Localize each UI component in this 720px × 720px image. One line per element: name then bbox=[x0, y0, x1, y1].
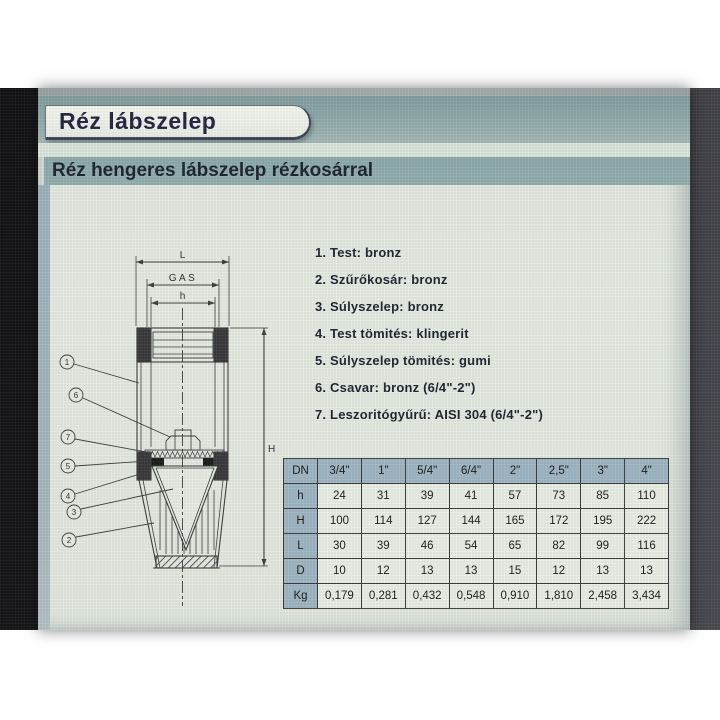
table-cell: 99 bbox=[581, 534, 625, 559]
table-cell: 172 bbox=[537, 509, 581, 534]
table-cell: 100 bbox=[318, 509, 362, 534]
materials-list: 1. Test: bronz 2. Szűrőkosár: bronz 3. S… bbox=[315, 245, 665, 434]
table-cell: 46 bbox=[405, 534, 449, 559]
table-cell: 222 bbox=[625, 509, 669, 534]
dim-label-L: L bbox=[180, 250, 186, 261]
col-header: 1" bbox=[361, 459, 405, 484]
table-cell: 0,281 bbox=[361, 584, 405, 609]
table-cell: 144 bbox=[449, 509, 493, 534]
col-header: 3" bbox=[581, 459, 625, 484]
table-cell: 127 bbox=[405, 509, 449, 534]
table-cell: 13 bbox=[405, 559, 449, 584]
title-band: Réz lábszelep bbox=[38, 96, 690, 143]
table-cell: 12 bbox=[537, 559, 581, 584]
table-row: L 30 39 46 54 65 82 99 116 bbox=[284, 534, 669, 559]
table-cell: 65 bbox=[493, 534, 537, 559]
table-cell: 12 bbox=[361, 559, 405, 584]
table-cell: 31 bbox=[361, 484, 405, 509]
col-header: 3/4" bbox=[318, 459, 362, 484]
col-header: 2" bbox=[493, 459, 537, 484]
table-header-row: DN 3/4" 1" 5/4" 6/4" 2" 2,5" 3" 4" bbox=[284, 459, 669, 484]
page-title: Réz lábszelep bbox=[45, 105, 311, 140]
table-cell: 165 bbox=[493, 509, 537, 534]
table-cell: 13 bbox=[581, 559, 625, 584]
table-cell: 0,179 bbox=[318, 584, 362, 609]
callout-1: 1 bbox=[65, 358, 70, 367]
catalog-page: Réz lábszelep Réz hengeres lábszelep réz… bbox=[38, 88, 690, 630]
table-cell: 15 bbox=[493, 559, 537, 584]
table-cell: 1,810 bbox=[537, 584, 581, 609]
page-top-edge bbox=[38, 88, 690, 96]
table-cell: 41 bbox=[449, 484, 493, 509]
table-cell: 73 bbox=[537, 484, 581, 509]
valve-technical-drawing: L GAS bbox=[50, 243, 290, 615]
material-item: 7. Leszoritógyűrű: AISI 304 (6/4"-2") bbox=[315, 407, 665, 420]
table-row: h 24 31 39 41 57 73 85 110 bbox=[284, 484, 669, 509]
photo-background: Réz lábszelep Réz hengeres lábszelep réz… bbox=[0, 88, 720, 630]
basket-bottom-cap bbox=[153, 556, 220, 568]
col-header: 4" bbox=[625, 459, 669, 484]
table-cell: 57 bbox=[493, 484, 537, 509]
table-cell: 195 bbox=[581, 509, 625, 534]
table-row: H 100 114 127 144 165 172 195 222 bbox=[284, 509, 669, 534]
dimension-H: H bbox=[219, 328, 275, 566]
col-header: 6/4" bbox=[449, 459, 493, 484]
table-cell: 3,434 bbox=[625, 584, 669, 609]
material-item: 1. Test: bronz bbox=[315, 245, 665, 258]
table-cell: 39 bbox=[361, 534, 405, 559]
table-cell: 0,548 bbox=[449, 584, 493, 609]
dim-label-GAS: GAS bbox=[169, 273, 198, 284]
page-margin-strip bbox=[38, 185, 50, 630]
row-label: Kg bbox=[284, 584, 318, 609]
table-cell: 114 bbox=[361, 509, 405, 534]
dim-label-h: h bbox=[180, 291, 186, 302]
dimension-h: h bbox=[151, 291, 215, 327]
row-label: h bbox=[284, 484, 318, 509]
material-item: 2. Szűrőkosár: bronz bbox=[315, 272, 665, 285]
callout-7: 7 bbox=[66, 433, 71, 442]
col-header: DN bbox=[284, 459, 318, 484]
table-cell: 13 bbox=[449, 559, 493, 584]
material-item: 5. Súlyszelep tömités: gumi bbox=[315, 353, 665, 366]
callout-4: 4 bbox=[66, 492, 71, 501]
table-cell: 30 bbox=[318, 534, 362, 559]
dim-label-H: H bbox=[268, 444, 275, 455]
material-item: 6. Csavar: bronz (6/4"-2") bbox=[315, 380, 665, 393]
spec-table: DN 3/4" 1" 5/4" 6/4" 2" 2,5" 3" 4" h 24 … bbox=[283, 458, 669, 609]
table-cell: 13 bbox=[625, 559, 669, 584]
content-area: L GAS bbox=[38, 185, 690, 630]
row-label: L bbox=[284, 534, 318, 559]
callout-2: 2 bbox=[67, 536, 72, 545]
table-cell: 85 bbox=[581, 484, 625, 509]
callouts: 1 6 7 5 4 3 2 bbox=[60, 355, 173, 547]
row-label: D bbox=[284, 559, 318, 584]
table-cell: 82 bbox=[537, 534, 581, 559]
valve-bolt bbox=[166, 430, 200, 450]
flange-left bbox=[137, 452, 151, 480]
table-cell: 24 bbox=[318, 484, 362, 509]
table-cell: 39 bbox=[405, 484, 449, 509]
callout-6: 6 bbox=[74, 391, 79, 400]
table-cell: 110 bbox=[625, 484, 669, 509]
table-cell: 0,910 bbox=[493, 584, 537, 609]
col-header: 5/4" bbox=[405, 459, 449, 484]
table-cell: 116 bbox=[625, 534, 669, 559]
material-item: 3. Súlyszelep: bronz bbox=[315, 299, 665, 312]
material-item: 4. Test tömités: klingerit bbox=[315, 326, 665, 339]
col-header: 2,5" bbox=[537, 459, 581, 484]
divider-strip bbox=[38, 143, 690, 157]
row-label: H bbox=[284, 509, 318, 534]
table-cell: 10 bbox=[318, 559, 362, 584]
clamp-ring bbox=[145, 450, 225, 458]
table-row: D 10 12 13 13 15 12 13 13 bbox=[284, 559, 669, 584]
table-cell: 2,458 bbox=[581, 584, 625, 609]
table-cell: 0,432 bbox=[405, 584, 449, 609]
callout-5: 5 bbox=[66, 462, 71, 471]
table-row: Kg 0,179 0,281 0,432 0,548 0,910 1,810 2… bbox=[284, 584, 669, 609]
table-cell: 54 bbox=[449, 534, 493, 559]
callout-3: 3 bbox=[72, 508, 77, 517]
page-subtitle: Réz hengeres lábszelep rézkosárral bbox=[44, 157, 690, 185]
